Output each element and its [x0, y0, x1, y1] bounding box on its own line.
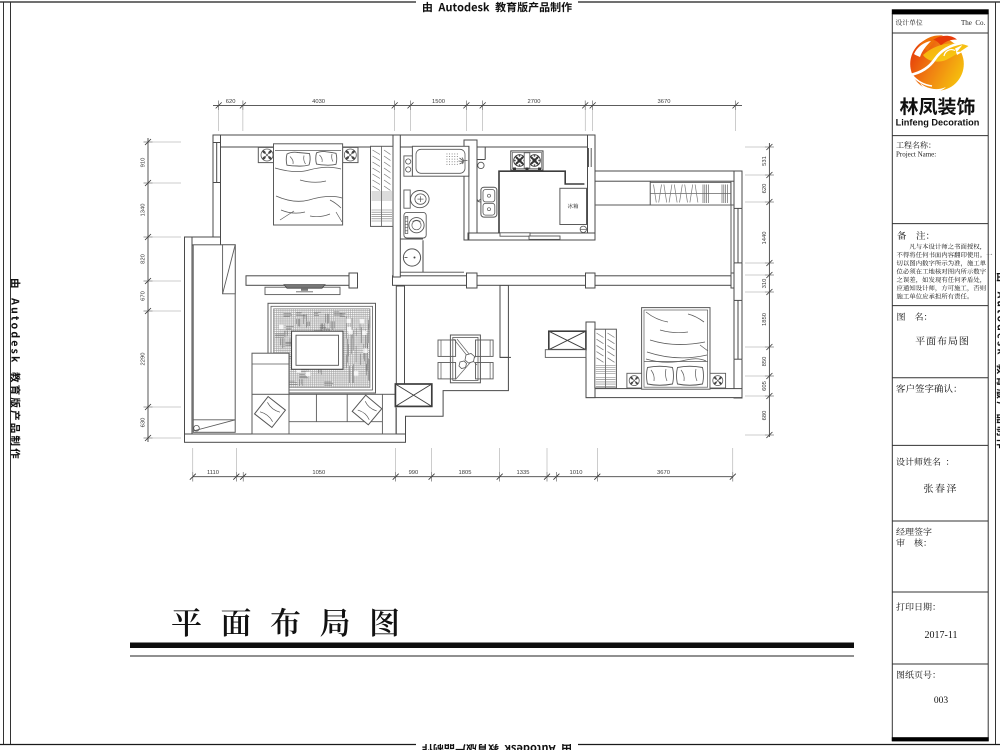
svg-text:Project Name:: Project Name: — [896, 151, 936, 159]
svg-text:630: 630 — [141, 418, 147, 428]
svg-text:3670: 3670 — [658, 99, 671, 105]
svg-text:1850: 1850 — [762, 313, 768, 326]
svg-text:2017-11: 2017-11 — [925, 630, 958, 641]
svg-text:3670: 3670 — [657, 470, 670, 476]
svg-text:910: 910 — [141, 158, 147, 168]
svg-text:605: 605 — [762, 381, 768, 391]
svg-text:003: 003 — [934, 696, 949, 706]
svg-text:820: 820 — [141, 254, 147, 264]
svg-text:620: 620 — [762, 184, 768, 194]
svg-text:1110: 1110 — [207, 470, 219, 476]
svg-text:The Co.: The Co. — [961, 19, 986, 27]
svg-text:531: 531 — [762, 156, 768, 166]
svg-text:310: 310 — [762, 279, 768, 289]
svg-text:4030: 4030 — [312, 99, 325, 105]
svg-text:1335: 1335 — [517, 470, 530, 476]
svg-text:680: 680 — [762, 411, 768, 421]
svg-text:850: 850 — [762, 357, 768, 367]
svg-text:1010: 1010 — [570, 470, 583, 476]
svg-text:1500: 1500 — [432, 99, 445, 105]
svg-text:1340: 1340 — [141, 204, 147, 217]
svg-text:1805: 1805 — [459, 470, 472, 476]
svg-text:670: 670 — [141, 291, 147, 301]
svg-text:990: 990 — [409, 470, 419, 476]
svg-text:Linfeng Decoration: Linfeng Decoration — [896, 118, 980, 128]
svg-text:2290: 2290 — [141, 353, 147, 366]
svg-text:2700: 2700 — [528, 99, 541, 105]
svg-text:1050: 1050 — [312, 470, 325, 476]
svg-text:1440: 1440 — [762, 232, 768, 245]
svg-text:620: 620 — [226, 99, 236, 105]
